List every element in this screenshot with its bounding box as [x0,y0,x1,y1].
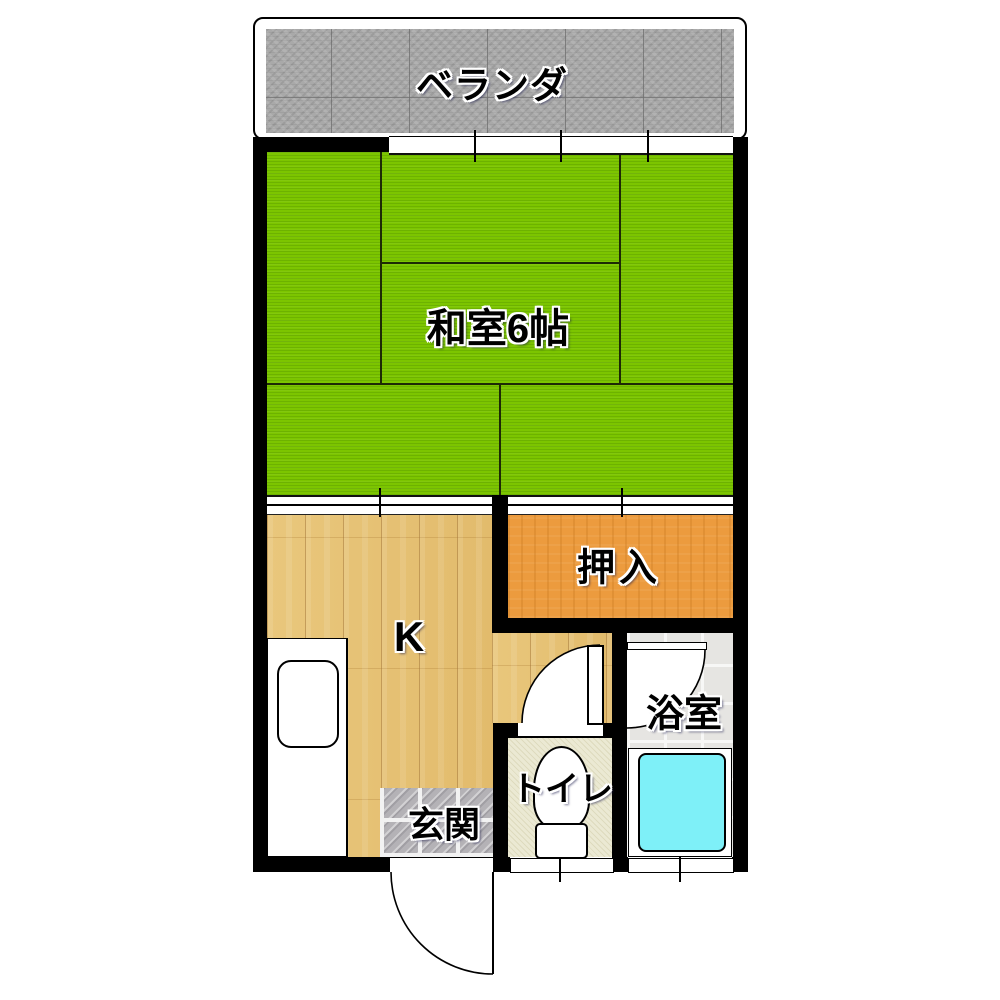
oshiire-label: 押入 [577,537,661,592]
top-wall-left [253,137,389,152]
bottom-wall-right [732,857,748,872]
window-frame-tick [647,130,649,162]
entrance-opening [390,857,493,873]
bathroom-label: 浴室 [646,683,722,738]
toilet-bathroom-divider-wall [612,633,627,857]
sliding-door-tick [379,488,381,517]
washitsu-label: 和室6帖 [427,296,569,354]
kitchen-label: K [394,613,424,661]
window-frame-tick [474,130,476,162]
toilet-tank [535,823,588,859]
toilet-label: トイレ [511,762,613,811]
bottom-wall-mid2 [612,857,628,872]
floor-plan: ベランダ 和室6帖 押入 K 玄関 トイレ 浴室 [0,0,1000,1000]
kitchen-sink [277,660,339,748]
tatami-seam [499,385,501,495]
window-frame-tick [559,856,561,882]
entrance-door-swing-arc [391,872,493,974]
bathtub [638,753,726,852]
toilet-window [510,858,614,873]
bottom-wall-mid1 [493,857,510,872]
genkan-label: 玄関 [408,796,480,848]
oshiire-left-wall [492,495,508,633]
window-frame-tick [560,130,562,162]
toilet-door-leaf [587,645,604,725]
tatami-seam [380,262,621,264]
window-frame-tick [679,856,681,882]
bathroom-window [628,858,734,873]
toilet-left-wall [493,723,508,857]
veranda-label: ベランダ [416,55,568,109]
tatami-seam [380,152,382,385]
oshiire-bottom-wall [492,618,748,633]
tatami-seam [619,152,621,385]
sliding-door-tick [621,488,623,517]
right-wall [733,137,748,872]
bottom-wall-left [253,857,390,872]
left-wall [253,137,267,872]
bathroom-door-leaf [627,642,707,650]
